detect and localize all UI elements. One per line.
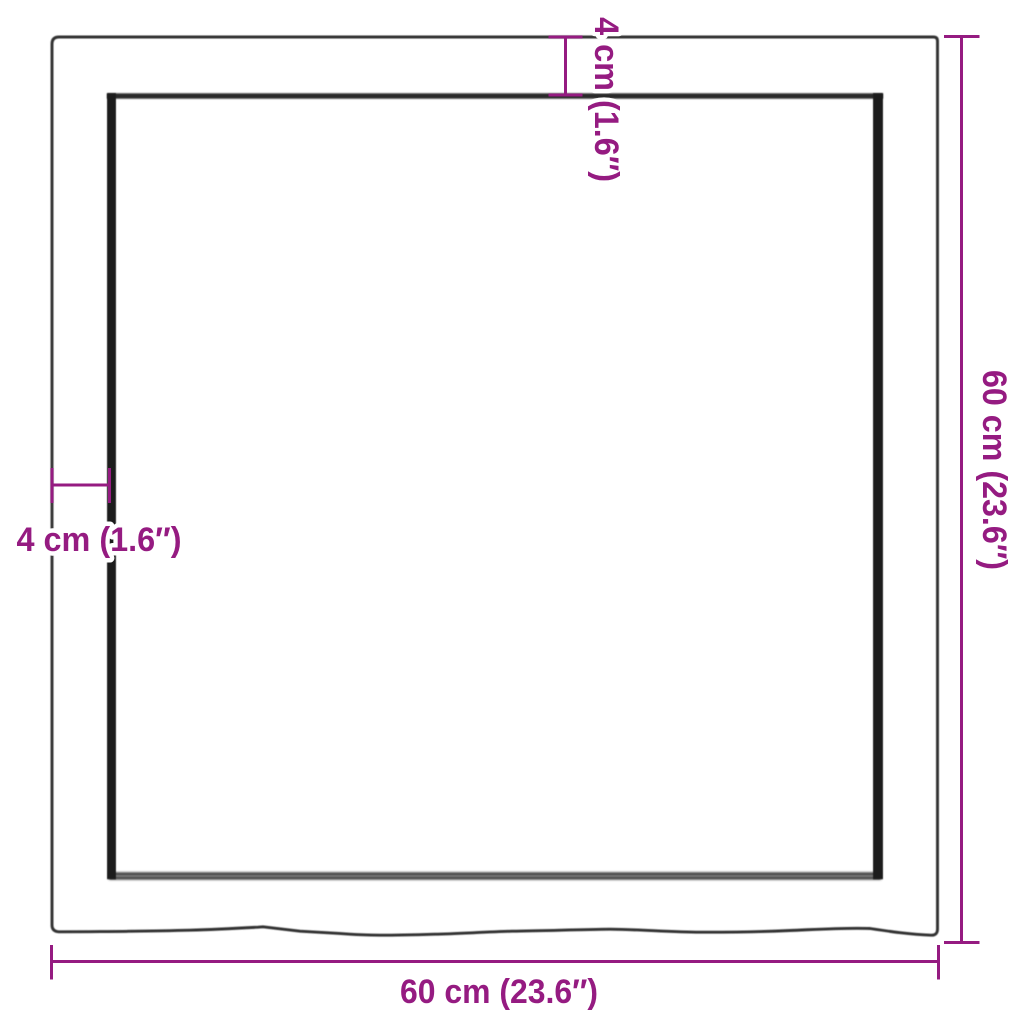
svg-text:4 cm (1.6″): 4 cm (1.6″) (587, 17, 625, 182)
svg-text:60 cm (23.6″): 60 cm (23.6″) (975, 370, 1013, 570)
svg-text:4 cm (1.6″): 4 cm (1.6″) (17, 521, 182, 559)
svg-text:60 cm (23.6″): 60 cm (23.6″) (400, 973, 598, 1011)
